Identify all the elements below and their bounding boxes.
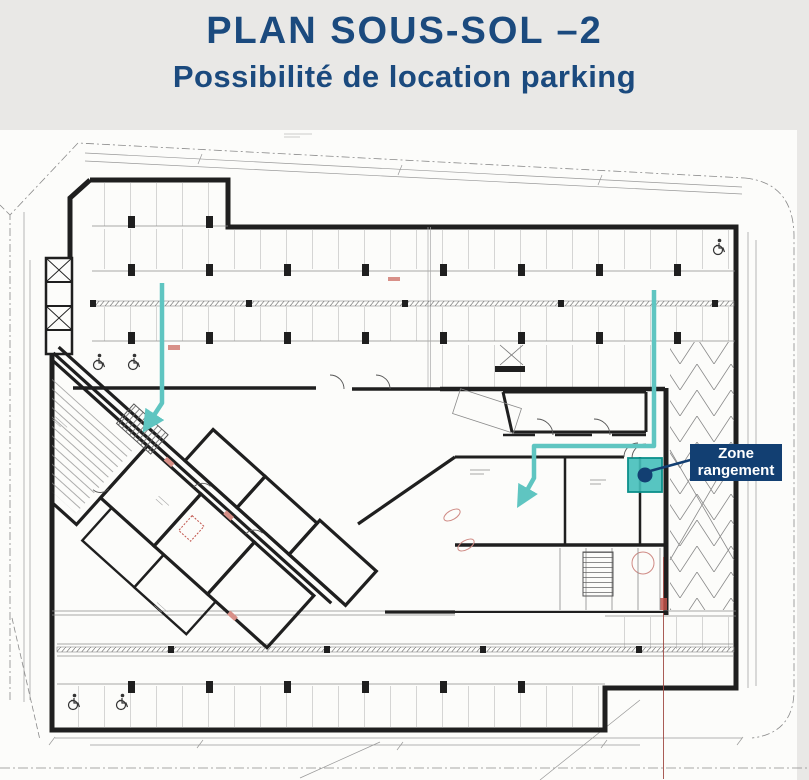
red-marker: [660, 598, 667, 610]
zone-rangement-callout: Zone rangement: [690, 444, 782, 481]
callout-line1: Zone: [690, 445, 782, 462]
structural-beam-top: [95, 301, 734, 306]
page-subtitle: Possibilité de location parking: [0, 59, 809, 95]
staircase: [583, 552, 613, 596]
stair-elevator-shafts: [46, 258, 72, 354]
red-marker: [168, 345, 180, 350]
page: PLAN SOUS-SOL –2 Possibilité de location…: [0, 0, 809, 780]
red-marker: [388, 277, 400, 281]
page-title: PLAN SOUS-SOL –2: [0, 10, 809, 53]
callout-line2: rangement: [690, 462, 782, 479]
structural-beam-bottom: [57, 647, 734, 652]
plan-header: PLAN SOUS-SOL –2 Possibilité de location…: [0, 0, 809, 130]
zone-rangement-dot: [638, 468, 653, 483]
